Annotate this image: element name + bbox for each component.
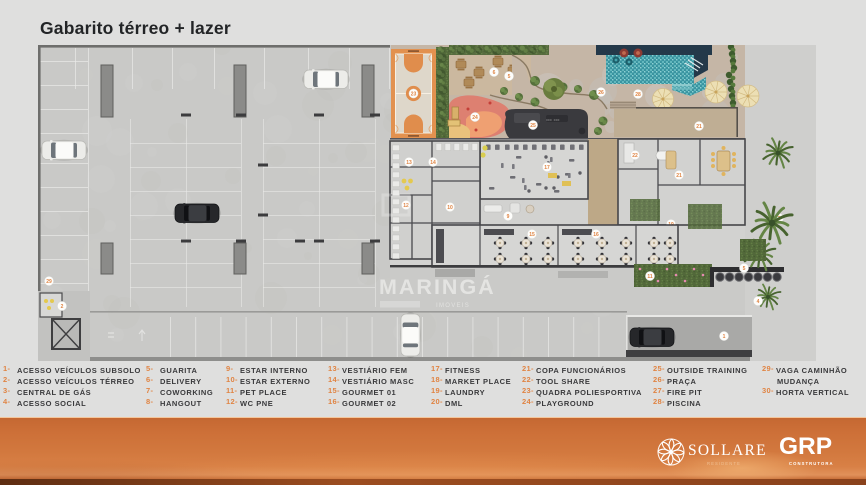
svg-text:25: 25 — [530, 123, 536, 129]
svg-text:13: 13 — [406, 160, 412, 166]
svg-text:29: 29 — [46, 279, 52, 285]
svg-text:11: 11 — [647, 274, 653, 280]
svg-text:2: 2 — [61, 304, 64, 310]
svg-text:4: 4 — [757, 299, 760, 305]
svg-text:21: 21 — [676, 173, 682, 179]
svg-text:9: 9 — [507, 214, 510, 220]
svg-text:10: 10 — [447, 205, 453, 211]
svg-text:1: 1 — [723, 334, 726, 340]
svg-text:15: 15 — [529, 232, 535, 238]
svg-text:6: 6 — [493, 70, 496, 76]
svg-text:28: 28 — [635, 92, 641, 98]
svg-text:MARINGÁ: MARINGÁ — [379, 274, 496, 299]
svg-text:=== ===: === === — [546, 118, 559, 122]
svg-text:5: 5 — [508, 74, 511, 80]
svg-text:21: 21 — [696, 124, 702, 130]
svg-text:22: 22 — [632, 153, 638, 159]
svg-text:23: 23 — [411, 91, 417, 97]
svg-text:5: 5 — [743, 266, 746, 272]
svg-text:26: 26 — [598, 90, 604, 96]
svg-text:17: 17 — [544, 165, 550, 171]
svg-text:14: 14 — [430, 160, 436, 166]
svg-text:24: 24 — [472, 115, 478, 121]
svg-text:16: 16 — [593, 232, 599, 238]
svg-text:IMÓVEIS: IMÓVEIS — [436, 302, 470, 309]
